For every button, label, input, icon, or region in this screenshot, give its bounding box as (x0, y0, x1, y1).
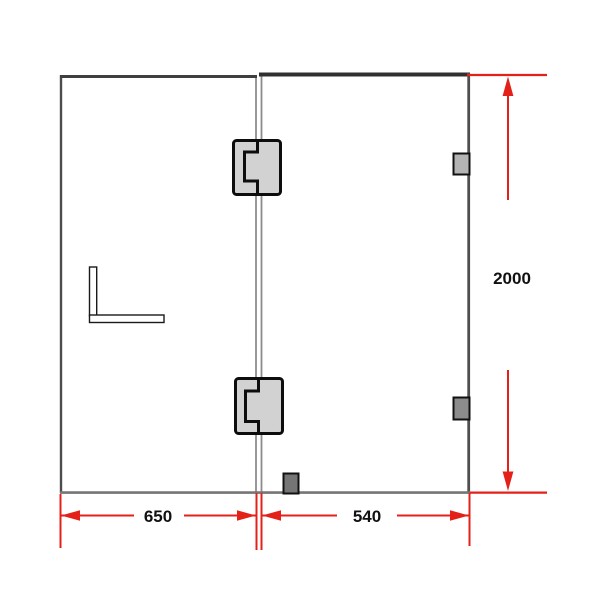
wall-bracket-top (454, 154, 470, 175)
l-bracket-horizontal-leg (90, 315, 165, 323)
dim-540-arrow-left-icon (262, 510, 281, 521)
hinge-bottom (236, 379, 283, 434)
dim-650-arrow-right-icon (237, 510, 256, 521)
dim-540-label: 540 (353, 507, 381, 526)
dim-2000-label: 2000 (493, 269, 531, 288)
wall-bracket-bottom (454, 398, 470, 420)
l-bracket-vertical-leg (90, 267, 97, 316)
dimension-divider-extensions (257, 493, 262, 550)
floor-bracket (284, 474, 299, 494)
l-bracket (90, 267, 165, 323)
dimension-650: 650 (61, 494, 257, 548)
hinge-top (234, 141, 281, 195)
dim-2000-arrow-down-icon (503, 472, 514, 492)
dimension-540: 540 (262, 493, 470, 546)
dim-540-arrow-right-icon (450, 510, 469, 521)
dimension-2000: 2000 (467, 75, 547, 493)
dim-650-arrow-left-icon (61, 510, 80, 521)
dim-650-label: 650 (144, 507, 172, 526)
shower-screen-dimension-diagram: 650 540 2000 (0, 0, 600, 600)
diagram-svg: 650 540 2000 (0, 0, 600, 600)
dim-2000-arrow-up-icon (503, 77, 514, 97)
